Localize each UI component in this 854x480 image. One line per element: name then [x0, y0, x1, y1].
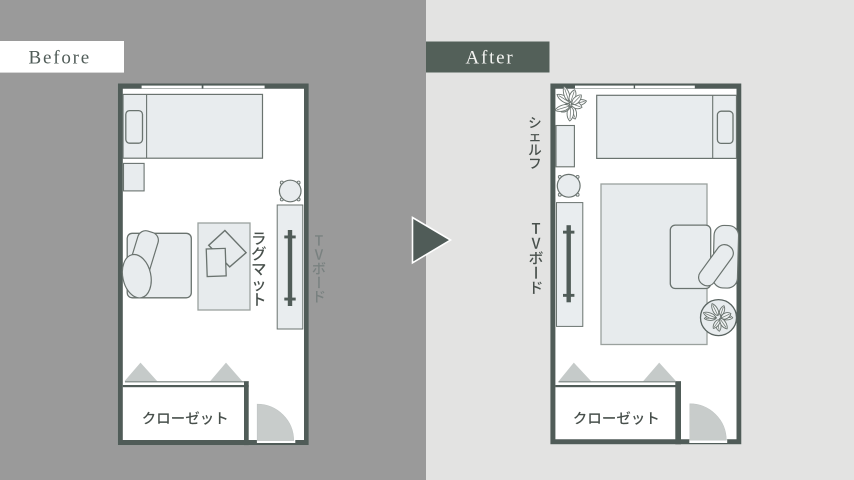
svg-text:Before: Before: [29, 48, 92, 69]
svg-text:After: After: [465, 48, 514, 69]
